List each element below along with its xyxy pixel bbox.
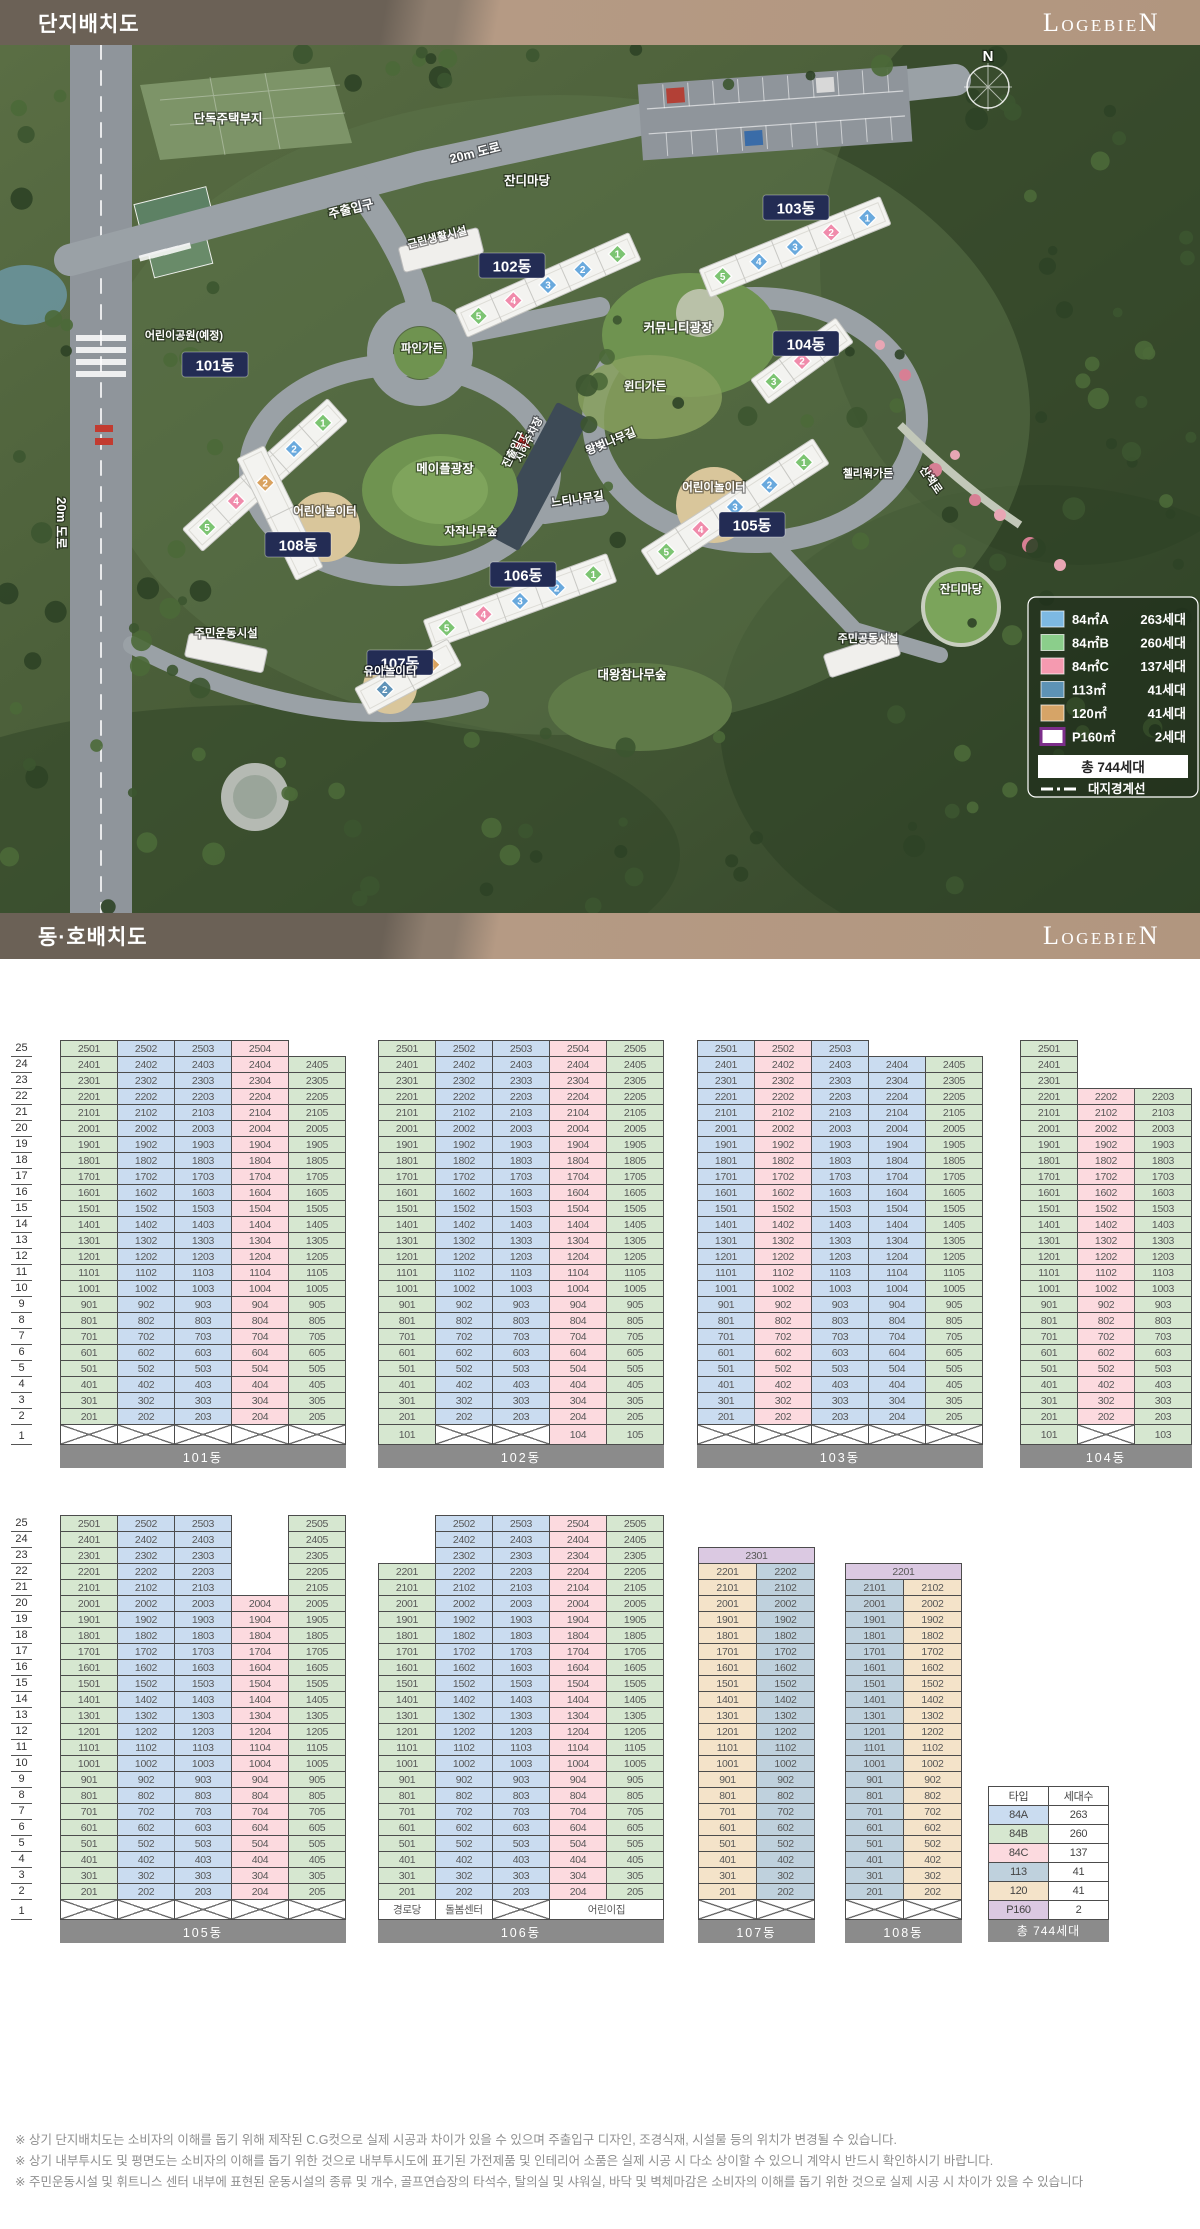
crossed-cell [288, 1424, 346, 1445]
unit-cell: 1003 [1134, 1280, 1192, 1297]
building-label-bar: 103동 [697, 1444, 983, 1468]
map-label: 자작나무숲 [445, 524, 498, 538]
unit-cell: 2302 [435, 1547, 493, 1564]
brand-letter: L [1043, 921, 1061, 950]
unit-cell: 2303 [492, 1072, 550, 1089]
unit-cell: 603 [811, 1344, 869, 1361]
unit-cell: 2401 [378, 1056, 436, 1073]
unit-cell: 304 [231, 1867, 289, 1884]
unit-cell: 905 [288, 1296, 346, 1313]
unit-cell: 1602 [435, 1659, 493, 1676]
unit-cell: 2303 [811, 1072, 869, 1089]
unit-cell: 1503 [174, 1675, 232, 1692]
unit-cell: 803 [174, 1312, 232, 1329]
building-badge: 105동 [719, 512, 785, 537]
unit-cell: 2003 [174, 1595, 232, 1612]
unit-cell: 2305 [288, 1547, 346, 1564]
floor-axis-item: 3 [6, 1867, 32, 1884]
crossed-cell [492, 1424, 550, 1445]
unit-cell: 2502 [435, 1515, 493, 1532]
unit-cell: 703 [811, 1328, 869, 1345]
unit-cell: 601 [1020, 1344, 1078, 1361]
floor-axis-item: 21 [6, 1104, 32, 1121]
unit-cell: 1702 [435, 1643, 493, 1660]
unit-cell: 2304 [549, 1072, 607, 1089]
type-cell: P160 [988, 1900, 1049, 1920]
unit-cell: 1002 [117, 1755, 175, 1772]
unit-cell: 603 [174, 1344, 232, 1361]
unit-cell: 1702 [435, 1168, 493, 1185]
unit-cell: 204 [231, 1408, 289, 1425]
legend-swatch [1041, 705, 1064, 721]
floor-axis-item: 14 [6, 1216, 32, 1233]
unit-cell: 1402 [117, 1691, 175, 1708]
unit-cell: 1501 [378, 1200, 436, 1217]
unit-cell: 1801 [378, 1627, 436, 1644]
unit-cell: 1303 [174, 1232, 232, 1249]
unit-cell: 2101 [60, 1579, 118, 1596]
floor-number: 25 [11, 1516, 32, 1532]
building-grid-107동: 2301220122022101210220012002190119021801… [698, 1547, 815, 1943]
count-cell: 2 [1048, 1900, 1109, 1920]
unit-cell: 1101 [378, 1739, 436, 1756]
unit-cell: 1101 [845, 1739, 904, 1756]
unit-cell: 1103 [492, 1264, 550, 1281]
floor1-row: 101103 [1020, 1424, 1192, 1445]
unit-cell: 404 [868, 1376, 926, 1393]
unit-cell: 304 [549, 1867, 607, 1884]
unit-cell: 1602 [117, 1659, 175, 1676]
unit-cell: 1501 [378, 1675, 436, 1692]
unit-cell: 2203 [811, 1088, 869, 1105]
unit-cell: 302 [754, 1392, 812, 1409]
unit-cell: 1502 [756, 1675, 815, 1692]
building-badge: 103동 [763, 195, 829, 220]
unit-cell: 2404 [231, 1056, 289, 1073]
unit-cell: 803 [811, 1312, 869, 1329]
unit-cell: 1603 [174, 1659, 232, 1676]
unit-cell: 1205 [606, 1248, 664, 1265]
unit-cell: 1003 [492, 1755, 550, 1772]
unit-cell: 1303 [811, 1232, 869, 1249]
unit-cell: 1802 [756, 1627, 815, 1644]
unit-cell: 405 [288, 1376, 346, 1393]
unit-cell: 304 [549, 1392, 607, 1409]
unit-cell: 1203 [1134, 1248, 1192, 1265]
unit-cell: 205 [606, 1408, 664, 1425]
unit-cell: 2005 [606, 1595, 664, 1612]
building-badge: 106동 [490, 562, 556, 587]
unit-cell: 805 [606, 1787, 664, 1804]
building-badge-label: 101동 [196, 357, 235, 374]
unit-cell: 1902 [754, 1136, 812, 1153]
floor-number: 16 [11, 1660, 32, 1676]
unit-cell: 1401 [378, 1691, 436, 1708]
unit-cell: 1301 [698, 1707, 757, 1724]
crossed-cell [117, 1899, 175, 1920]
map-label: 커뮤니티광장 [643, 320, 713, 335]
unit-cell: 401 [845, 1851, 904, 1868]
unit-cell: 1705 [288, 1168, 346, 1185]
unit-cell: 2505 [288, 1515, 346, 1532]
unit-cell: 1101 [378, 1264, 436, 1281]
floor-axis-item: 9 [6, 1296, 32, 1313]
unit-cell: 1905 [288, 1611, 346, 1628]
unit-cell: 2302 [117, 1072, 175, 1089]
unit-cell: 302 [117, 1392, 175, 1409]
unit-cell: 304 [868, 1392, 926, 1409]
unit-cell: 503 [174, 1360, 232, 1377]
legend-count: 263세대 [1140, 612, 1186, 627]
unit-cell: 1104 [231, 1264, 289, 1281]
unit-cell: 702 [117, 1803, 175, 1820]
unit-cell: 604 [549, 1819, 607, 1836]
unit-cell: 901 [60, 1296, 118, 1313]
unit-cell: 1201 [60, 1723, 118, 1740]
unit-cell: 501 [698, 1835, 757, 1852]
stack-number: 1 [615, 250, 621, 261]
unit-cell: 2503 [492, 1515, 550, 1532]
unit-cell: 2304 [231, 1072, 289, 1089]
stack-number: 4 [233, 497, 239, 508]
unit-cell: 904 [549, 1296, 607, 1313]
map-legend: 84㎡A263세대84㎡B260세대84㎡C137세대113㎡41세대120㎡4… [1028, 597, 1198, 797]
unit-cell: 902 [435, 1296, 493, 1313]
unit-cell: 602 [756, 1819, 815, 1836]
stack-number: 3 [517, 597, 523, 608]
unit-cell: 1405 [288, 1691, 346, 1708]
unit-cell: 1203 [174, 1248, 232, 1265]
floor-axis-item: 2 [6, 1408, 32, 1425]
unit-cell: 1803 [174, 1152, 232, 1169]
stack-number: 2 [291, 445, 297, 456]
brand-letter: B [1104, 929, 1118, 948]
unit-cell: 1703 [174, 1643, 232, 1660]
unit-cell: 405 [288, 1851, 346, 1868]
floor-axis-item: 2 [6, 1883, 32, 1900]
count-cell: 137 [1048, 1843, 1109, 1863]
unit-cell: 2102 [117, 1104, 175, 1121]
legend-type-label: 84㎡A [1072, 612, 1109, 627]
unit-cell: 1505 [606, 1675, 664, 1692]
unit-cell: 1602 [754, 1184, 812, 1201]
unit-cell: 202 [117, 1883, 175, 1900]
unit-cell: 1204 [549, 1248, 607, 1265]
unit-cell: 1602 [903, 1659, 962, 1676]
unit-cell: 1604 [549, 1659, 607, 1676]
unit-cell: 503 [1134, 1360, 1192, 1377]
footnotes: ※ 상기 단지배치도는 소비자의 이해를 돕기 위해 제작된 C.G컷으로 실제… [15, 2130, 1195, 2193]
unit-cell: 2201 [378, 1563, 436, 1580]
unit-cell: 1304 [231, 1707, 289, 1724]
brand-letter: L [1043, 8, 1061, 37]
unit-cell: 2501 [378, 1040, 436, 1057]
unit-cell: 703 [174, 1328, 232, 1345]
unit-cell: 2503 [492, 1040, 550, 1057]
unit-cell: 903 [492, 1296, 550, 1313]
unit-cell: 202 [435, 1883, 493, 1900]
facility-cell: 경로당 [378, 1899, 436, 1920]
unit-cell: 1004 [231, 1755, 289, 1772]
unit-cell: 1103 [492, 1739, 550, 1756]
unit-cell: 505 [288, 1835, 346, 1852]
unit-cell: 1404 [549, 1216, 607, 1233]
unit-cell: 504 [549, 1360, 607, 1377]
floor-axis-item: 17 [6, 1168, 32, 1185]
unit-cell: 1801 [698, 1627, 757, 1644]
unit-cell: 705 [288, 1803, 346, 1820]
unit-cell: 2404 [549, 1531, 607, 1548]
unit-cell: 2104 [549, 1104, 607, 1121]
brand-letter: O [1061, 929, 1076, 948]
unit-cell: 2004 [868, 1120, 926, 1137]
unit-cell: 502 [117, 1360, 175, 1377]
map-label: 잔디마당 [940, 582, 983, 596]
unit-cell: 1502 [435, 1675, 493, 1692]
unit-cell: 1201 [378, 1248, 436, 1265]
unit-cell: 501 [378, 1835, 436, 1852]
building-label-bar: 107동 [698, 1919, 815, 1943]
unit-cell: 1903 [811, 1136, 869, 1153]
floor-axis-item: 12 [6, 1723, 32, 1740]
unit-cell: 1904 [231, 1136, 289, 1153]
building-label-bar: 108동 [845, 1919, 962, 1943]
unit-cell: 1505 [288, 1200, 346, 1217]
unit-cell: 2105 [606, 1579, 664, 1596]
unit-cell: 403 [174, 1851, 232, 1868]
unit-cell: 1103 [1134, 1264, 1192, 1281]
unit-cell: 201 [1020, 1408, 1078, 1425]
stack-number: 1 [865, 213, 871, 224]
floor-axis-item: 24 [6, 1056, 32, 1073]
floor1-row [60, 1424, 346, 1445]
type-cell: 84C [988, 1843, 1049, 1863]
unit-cell: 1403 [174, 1691, 232, 1708]
unit-cell: 2205 [288, 1088, 346, 1105]
unit-cell: 1905 [606, 1136, 664, 1153]
floor-axis-item: 16 [6, 1184, 32, 1201]
unit-cell: 1202 [435, 1248, 493, 1265]
unit-cell: 1105 [606, 1264, 664, 1281]
unit-cell: 1905 [925, 1136, 983, 1153]
unit-cell: 2102 [1077, 1104, 1135, 1121]
unit-cell: 1901 [60, 1136, 118, 1153]
brand-letter: I [1118, 16, 1126, 35]
map-label: 첼리워가든 [843, 466, 894, 480]
building-grid-103동: 2501250225032401240224032404240523012302… [697, 1040, 983, 1468]
unit-cell: 1502 [117, 1675, 175, 1692]
unit-cell: 903 [174, 1296, 232, 1313]
unit-cell: 1001 [697, 1280, 755, 1297]
unit-cell: 802 [1077, 1312, 1135, 1329]
unit-cell: 801 [845, 1787, 904, 1804]
floor-axis-item: 22 [6, 1088, 32, 1105]
unit-cell: 1105 [288, 1739, 346, 1756]
floor-axis-item: 22 [6, 1563, 32, 1580]
unit-cell: 1301 [378, 1232, 436, 1249]
unit-cell: 602 [903, 1819, 962, 1836]
unit-cell: 1502 [435, 1200, 493, 1217]
unit-cell: 1003 [811, 1280, 869, 1297]
legend-type-label: 84㎡B [1072, 636, 1109, 651]
unit-cell: 1401 [378, 1216, 436, 1233]
unit-cell: 1504 [231, 1675, 289, 1692]
unit-cell: 802 [756, 1787, 815, 1804]
unit-cell: 1202 [435, 1723, 493, 1740]
unit-cell: 1602 [117, 1184, 175, 1201]
floor-number: 17 [11, 1169, 32, 1185]
floor-number: 7 [11, 1804, 32, 1820]
unit-cell: 201 [698, 1883, 757, 1900]
unit-cell: 2202 [756, 1563, 815, 1580]
unit-cell: 503 [492, 1360, 550, 1377]
unit-cell: 2405 [925, 1056, 983, 1073]
unit-cell: 1403 [811, 1216, 869, 1233]
unit-cell: 2104 [868, 1104, 926, 1121]
unit-cell: 604 [868, 1344, 926, 1361]
unit-cell: 2204 [231, 1088, 289, 1105]
unit-cell: 1401 [845, 1691, 904, 1708]
unit-cell: 1305 [606, 1707, 664, 1724]
unit-cell: 2202 [1077, 1088, 1135, 1105]
unit-cell: 1404 [231, 1691, 289, 1708]
building-grid-104동: 2501240123012201220222032101210221032001… [1020, 1040, 1192, 1468]
unit-cell: 1001 [378, 1755, 436, 1772]
unit-cell: 1804 [549, 1627, 607, 1644]
stack-number: 4 [481, 610, 487, 621]
unit-cell: 1805 [606, 1627, 664, 1644]
unit-cell: 2203 [174, 1563, 232, 1580]
floor-number: 3 [11, 1393, 32, 1409]
unit-cell: 205 [288, 1408, 346, 1425]
unit-cell: 603 [492, 1819, 550, 1836]
unit-cell: 1702 [1077, 1168, 1135, 1185]
unit-cell: 605 [606, 1344, 664, 1361]
unit-cell: 1701 [698, 1643, 757, 1660]
unit-cell: 502 [903, 1835, 962, 1852]
floor-axis: 2524232221201918171615141312111098765432… [6, 1515, 32, 1920]
unit-cell: 1003 [174, 1280, 232, 1297]
unit-cell: 1701 [60, 1168, 118, 1185]
unit-cell: 601 [845, 1819, 904, 1836]
unit-cell: 1302 [117, 1232, 175, 1249]
unit-cell: 505 [288, 1360, 346, 1377]
floor-number: 5 [11, 1361, 32, 1377]
unit-cell: 1105 [925, 1264, 983, 1281]
legend-type-label: 113㎡ [1072, 683, 1106, 698]
floor-number: 14 [11, 1217, 32, 1233]
unit-cell: 602 [435, 1344, 493, 1361]
unit-cell: 2304 [549, 1547, 607, 1564]
unit-cell: 2201 [697, 1088, 755, 1105]
unit-cell: 1803 [811, 1152, 869, 1169]
unit-cell: 1203 [174, 1723, 232, 1740]
map-label: 대왕참나무숲 [597, 667, 667, 682]
stack-number: 2 [262, 478, 268, 489]
unit-cell: 1001 [698, 1755, 757, 1772]
unit-cell: 902 [117, 1771, 175, 1788]
floor-axis-item: 11 [6, 1739, 32, 1756]
unit-cell: 1005 [288, 1280, 346, 1297]
floor1-row: 경로당돌봄센터어린이집 [378, 1899, 664, 1920]
unit-cell: 2202 [754, 1088, 812, 1105]
unit-cell: 701 [845, 1803, 904, 1820]
legend-swatch [1041, 729, 1064, 745]
unit-cell: 2304 [868, 1072, 926, 1089]
unit-cell: 605 [606, 1819, 664, 1836]
floor-number: 11 [11, 1740, 32, 1756]
unit-cell: 1101 [60, 1264, 118, 1281]
brand-logo: LOGEBIEN [1043, 8, 1160, 38]
floor-axis-item: 23 [6, 1547, 32, 1564]
unit-cell: 1005 [606, 1755, 664, 1772]
unit-cell: 201 [378, 1883, 436, 1900]
unit-cell: 202 [1077, 1408, 1135, 1425]
unit-cell: 801 [60, 1312, 118, 1329]
type-table-row: P1602 [988, 1900, 1109, 1920]
unit-cell: 2502 [754, 1040, 812, 1057]
unit-cell: 2101 [698, 1579, 757, 1596]
unit-cell: 1603 [492, 1659, 550, 1676]
unit-cell: 1402 [754, 1216, 812, 1233]
unit-cell: 705 [288, 1328, 346, 1345]
unit-cell: 903 [1134, 1296, 1192, 1313]
crossed-cell [903, 1899, 962, 1920]
unit-cell: 2101 [1020, 1104, 1078, 1121]
unit-cell: 2004 [231, 1120, 289, 1137]
unit-cell: 904 [868, 1296, 926, 1313]
floor-number: 14 [11, 1692, 32, 1708]
unit-cell: 201 [378, 1408, 436, 1425]
unit-cell: 2205 [606, 1563, 664, 1580]
unit-cell: 2302 [754, 1072, 812, 1089]
building-badge: 102동 [479, 253, 545, 278]
unit-cell: 202 [754, 1408, 812, 1425]
unit-cell: 1405 [925, 1216, 983, 1233]
brand-letter: G [1076, 16, 1091, 35]
floor-number: 7 [11, 1329, 32, 1345]
unit-cell: 1101 [60, 1739, 118, 1756]
brand-letter: I [1118, 929, 1126, 948]
unit-cell: 1403 [1134, 1216, 1192, 1233]
unit-cell: 902 [903, 1771, 962, 1788]
floor-axis-item: 7 [6, 1803, 32, 1820]
unit-cell: 1503 [811, 1200, 869, 1217]
unit-cell: 901 [1020, 1296, 1078, 1313]
type-table-header-cell: 세대수 [1048, 1786, 1109, 1806]
unit-cell: 802 [117, 1312, 175, 1329]
unit-cell: 1401 [1020, 1216, 1078, 1233]
unit-cell: 604 [231, 1819, 289, 1836]
unit-cell: 2405 [288, 1056, 346, 1073]
unit-cell: 1405 [606, 1691, 664, 1708]
unit-cell: 402 [756, 1851, 815, 1868]
unit-cell: 1203 [492, 1723, 550, 1740]
unit-cell: 2103 [1134, 1104, 1192, 1121]
unit-cell: 1402 [903, 1691, 962, 1708]
unit-cell: 1702 [117, 1168, 175, 1185]
unit-cell: 1402 [435, 1216, 493, 1233]
unit-cell: 1601 [697, 1184, 755, 1201]
crossed-cell [698, 1899, 757, 1920]
unit-cell: 1002 [756, 1755, 815, 1772]
unit-cell: 1704 [231, 1643, 289, 1660]
unit-cell: 403 [811, 1376, 869, 1393]
building-grid-101동: 2501250225032504240124022403240424052301… [60, 1040, 346, 1468]
unit-cell: 1704 [549, 1643, 607, 1660]
unit-cell: 2401 [1020, 1056, 1078, 1073]
crossed-cell [492, 1899, 550, 1920]
